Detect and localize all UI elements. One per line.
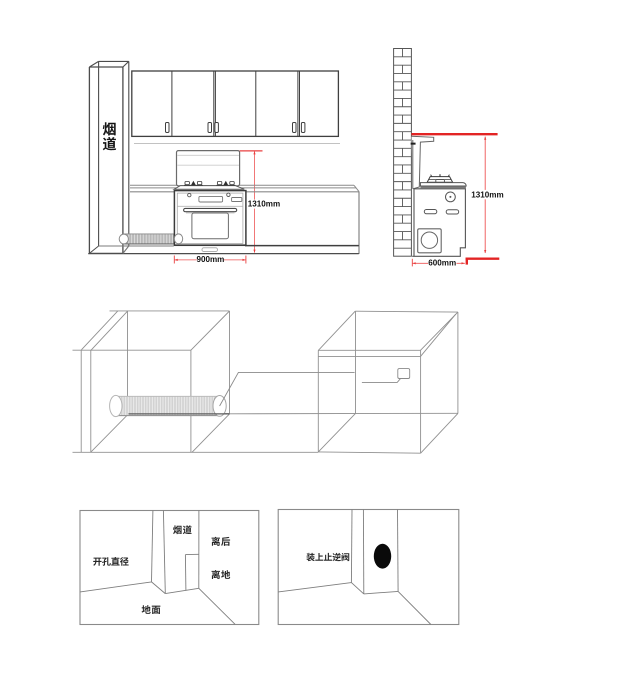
- svg-text:900mm: 900mm: [196, 255, 224, 264]
- svg-text:1310mm: 1310mm: [248, 200, 280, 209]
- svg-text:1310mm: 1310mm: [471, 190, 503, 199]
- svg-text:600mm: 600mm: [428, 259, 456, 268]
